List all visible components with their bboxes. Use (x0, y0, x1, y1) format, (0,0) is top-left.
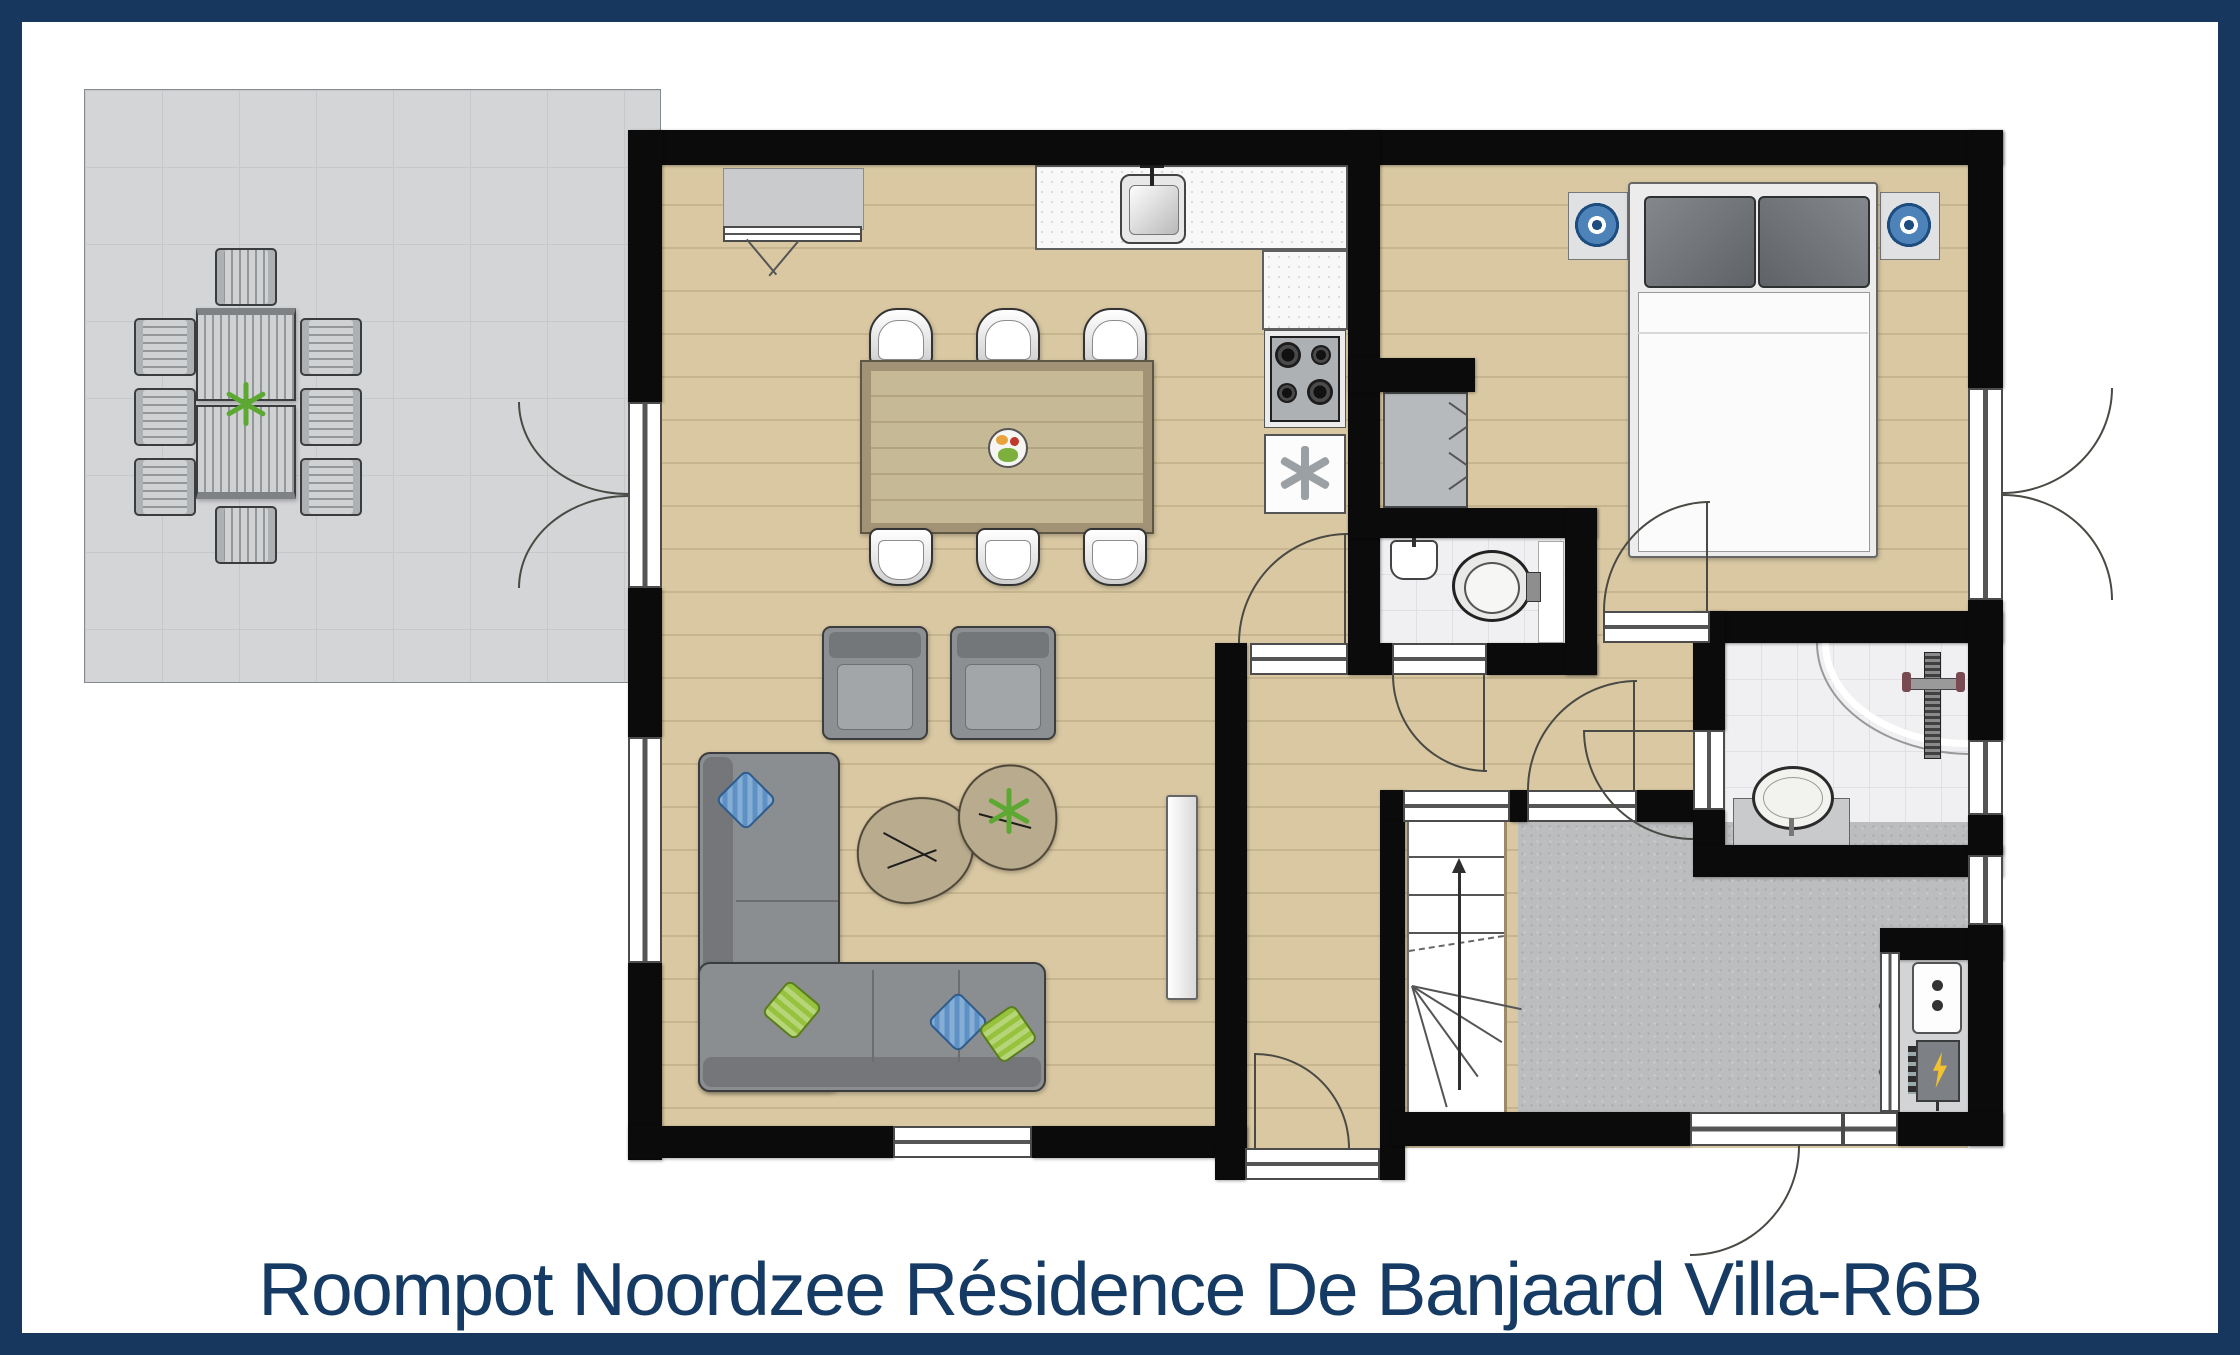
door-leaf (1483, 675, 1485, 772)
wall (1968, 130, 2003, 388)
bathroom-door-threshold (1693, 730, 1725, 810)
dining-chair (869, 528, 933, 586)
sofa-cushion-line (872, 970, 874, 1062)
toilet-door-threshold (1392, 643, 1487, 675)
living-window (628, 737, 662, 963)
wall (1693, 810, 1725, 845)
dining-chair (1083, 308, 1147, 366)
fruit-bowl (988, 428, 1028, 468)
toilet-flush (1526, 572, 1541, 602)
double-bed (1628, 182, 1878, 558)
terrace-floor (85, 90, 660, 682)
freezer-asterisk-icon (1278, 446, 1332, 500)
sink-basin (1129, 185, 1179, 235)
meter-closet-fold-door (1880, 952, 1900, 1112)
front-door-swing (1690, 1146, 1800, 1256)
wall (1348, 508, 1597, 538)
staircase (1407, 822, 1507, 1112)
burner-icon (1307, 379, 1333, 405)
burner-icon (1277, 383, 1297, 403)
stair-arrow-shaft (1458, 872, 1461, 1090)
wall (1710, 611, 2003, 643)
stair-cut-line (1409, 935, 1504, 952)
chair-seat (985, 540, 1031, 580)
outdoor-chair (134, 458, 196, 516)
living-window (893, 1126, 1032, 1158)
stair-tread (1409, 894, 1504, 896)
wall (628, 1126, 893, 1158)
bathroom-window (1968, 740, 2003, 815)
mixer-knob (1902, 672, 1911, 692)
dining-chair (869, 308, 933, 366)
dining-chair (976, 308, 1040, 366)
wall (628, 588, 662, 737)
wall (1510, 790, 1527, 822)
bedroom-french-door-swing (2003, 494, 2113, 600)
boiler-port (1932, 980, 1943, 991)
kitchen-counter-column (1262, 250, 1348, 330)
basin-faucet-icon (1789, 818, 1794, 836)
stair-arrow-head (1452, 858, 1466, 873)
door-leaf (1254, 1053, 1256, 1148)
vestibule-window (1245, 1148, 1380, 1180)
electrical-panel (1916, 1040, 1960, 1102)
gas-hob (1264, 330, 1346, 428)
toilet-seat (1464, 562, 1520, 614)
wall (655, 130, 2003, 165)
wardrobe (1383, 392, 1468, 508)
outdoor-chair (134, 388, 196, 446)
wall (1968, 600, 2003, 740)
wall (1380, 1148, 1405, 1180)
chair-seat (1092, 540, 1138, 580)
wall (1348, 130, 1380, 675)
dining-chair (976, 528, 1040, 586)
terrace-french-door (628, 402, 662, 588)
bedside-lamp-icon (1885, 201, 1933, 249)
fruit-red (1010, 437, 1019, 446)
outdoor-chair (300, 318, 362, 376)
shower-drain (1924, 652, 1941, 759)
armchair-back (957, 632, 1049, 658)
wall (1380, 790, 1405, 822)
page-title: Roompot Noordzee Résidence De Banjaard V… (0, 1246, 2240, 1332)
wall (1215, 643, 1247, 1160)
panel-cable (1936, 1100, 1939, 1111)
bedroom-french-door-swing (2003, 388, 2113, 494)
wall (1215, 1148, 1245, 1180)
wall (1565, 508, 1597, 675)
front-door-sidelight (1843, 1112, 1898, 1146)
armchair (950, 626, 1056, 740)
dining-chair (1083, 528, 1147, 586)
burner-icon (1311, 345, 1331, 365)
wall (1898, 1112, 2003, 1146)
niche-sill-window (723, 226, 862, 242)
wall (1380, 643, 1392, 675)
duvet-fold-line (1638, 332, 1868, 334)
bedroom-door-threshold (1603, 611, 1710, 643)
tv (1166, 795, 1198, 1000)
toilet-door-leaf (1538, 541, 1564, 643)
shower-mixer (1906, 678, 1962, 690)
hall-window (1968, 855, 2003, 925)
wall (1968, 815, 2003, 855)
outdoor-chair (300, 458, 362, 516)
panel-terminals (1908, 1046, 1916, 1094)
burner-icon (1275, 342, 1301, 368)
fruit-grapes (998, 448, 1018, 462)
wall (1693, 845, 2003, 877)
armchair (822, 626, 928, 740)
floor-plan-page: Roompot Noordzee Résidence De Banjaard V… (0, 0, 2240, 1355)
bedroom-french-door (1968, 388, 2003, 600)
door-leaf (1706, 501, 1708, 611)
lightning-bolt-icon (1930, 1052, 1950, 1088)
wall (1380, 822, 1405, 1148)
chair-seat (878, 320, 924, 360)
toilet-bowl (1452, 550, 1532, 622)
outdoor-chair (300, 388, 362, 446)
bed-pillow (1644, 196, 1756, 288)
door-leaf (1583, 730, 1693, 732)
boiler-port (1932, 1000, 1943, 1011)
terrace-plant-icon (224, 382, 268, 426)
boiler (1912, 962, 1962, 1034)
bedside-lamp-icon (1573, 201, 1621, 249)
living-door-threshold (1250, 643, 1348, 675)
door-leaf (1344, 533, 1346, 643)
wall (628, 130, 662, 402)
outdoor-chair (215, 506, 277, 564)
armchair-back (829, 632, 921, 658)
sofa-cushion-line (736, 900, 838, 902)
armchair-cushion (965, 664, 1041, 730)
chair-seat (1092, 320, 1138, 360)
window-niche (723, 168, 864, 230)
plant-icon (986, 788, 1032, 834)
outdoor-chair (215, 248, 277, 306)
kitchen-counter (1035, 165, 1348, 250)
armchair-cushion (837, 664, 913, 730)
mixer-knob (1956, 672, 1965, 692)
bed-pillow (1758, 196, 1870, 288)
stair-tread (1409, 932, 1504, 934)
basin-inner-ring (1763, 777, 1823, 819)
fruit-orange (996, 435, 1008, 445)
chair-seat (878, 540, 924, 580)
wall (1348, 358, 1475, 392)
chair-seat (985, 320, 1031, 360)
wall (1393, 1112, 1690, 1146)
hall-threshold (1403, 790, 1510, 822)
front-door (1690, 1112, 1843, 1146)
outdoor-chair (134, 318, 196, 376)
